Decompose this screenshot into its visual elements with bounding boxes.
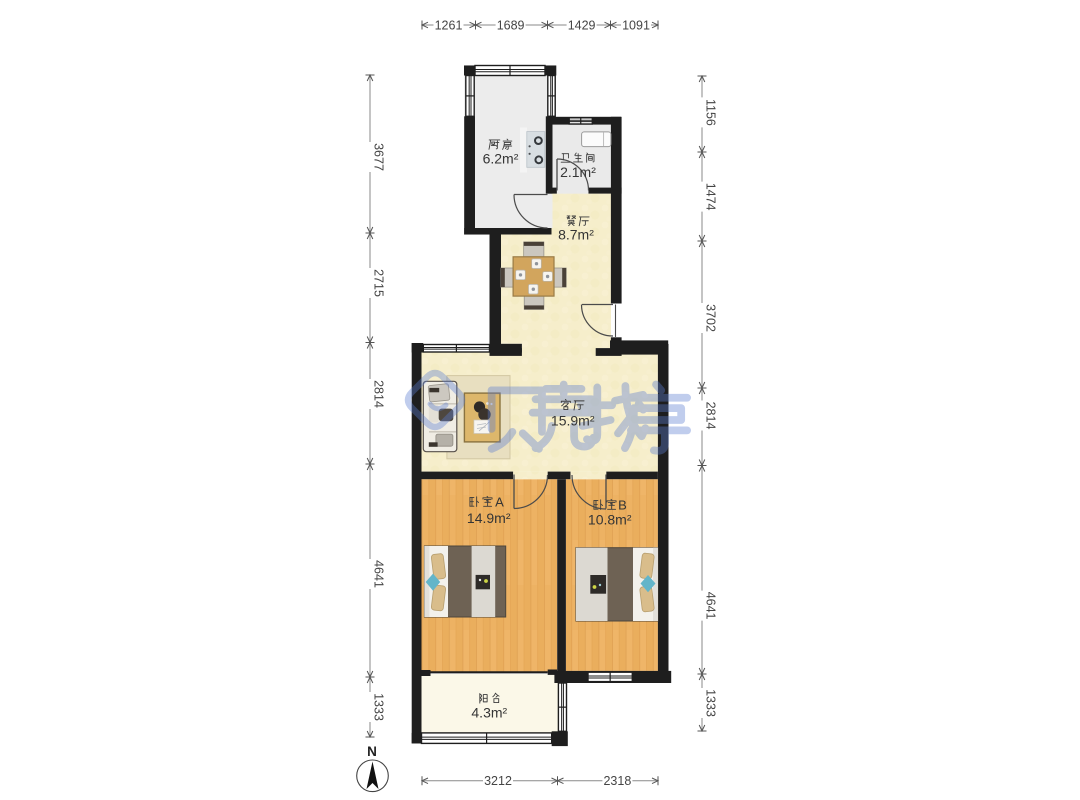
svg-text:1333: 1333 bbox=[371, 693, 385, 721]
svg-text:2318: 2318 bbox=[603, 774, 631, 788]
svg-text:15.9m²: 15.9m² bbox=[551, 413, 595, 429]
svg-text:1156: 1156 bbox=[703, 99, 717, 126]
svg-text:1261: 1261 bbox=[435, 18, 463, 32]
svg-text:2715: 2715 bbox=[371, 269, 385, 297]
svg-text:3702: 3702 bbox=[703, 304, 717, 332]
svg-text:N: N bbox=[367, 744, 377, 759]
svg-text:B: B bbox=[618, 498, 627, 513]
svg-text:4641: 4641 bbox=[371, 560, 385, 588]
svg-text:8.7m²: 8.7m² bbox=[558, 227, 594, 243]
svg-text:14.9m²: 14.9m² bbox=[467, 510, 511, 526]
svg-text:1689: 1689 bbox=[497, 18, 525, 32]
svg-text:4641: 4641 bbox=[703, 592, 717, 620]
svg-text:2814: 2814 bbox=[703, 402, 717, 430]
svg-text:3677: 3677 bbox=[371, 143, 385, 171]
svg-text:1333: 1333 bbox=[703, 689, 717, 717]
svg-text:1429: 1429 bbox=[568, 18, 596, 32]
svg-text:6.2m²: 6.2m² bbox=[483, 151, 519, 167]
svg-text:10.8m²: 10.8m² bbox=[588, 512, 632, 528]
svg-text:1474: 1474 bbox=[703, 183, 717, 211]
svg-text:A: A bbox=[495, 495, 504, 510]
svg-text:2814: 2814 bbox=[371, 380, 385, 408]
svg-text:2.1m²: 2.1m² bbox=[560, 164, 596, 180]
svg-text:1091: 1091 bbox=[622, 18, 650, 32]
svg-text:4.3m²: 4.3m² bbox=[471, 705, 507, 721]
svg-text:3212: 3212 bbox=[484, 774, 512, 788]
